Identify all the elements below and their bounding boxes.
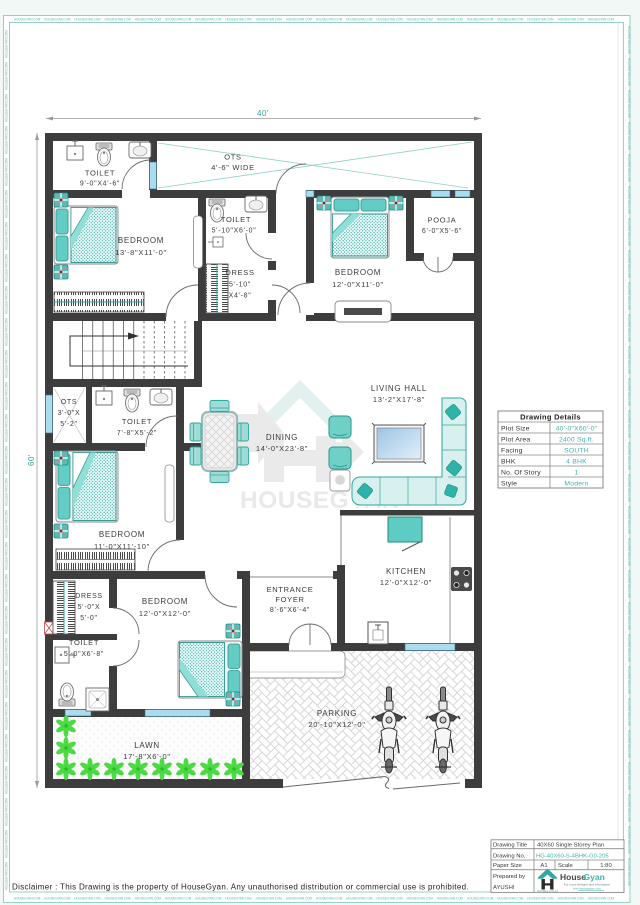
svg-text:HG-40X60-S-4BHK-G0-205: HG-40X60-S-4BHK-G0-205 bbox=[536, 853, 609, 859]
svg-text:7'-8"X5'-2": 7'-8"X5'-2" bbox=[117, 430, 157, 437]
svg-text:TOILET: TOILET bbox=[69, 638, 99, 647]
svg-text:Drawing Title: Drawing Title bbox=[493, 842, 528, 848]
svg-text:HOUSEGYAN.COM HOUSEGYAN.CO: HOUSEGYAN.COM HOUSEGYAN.COM HOUSEGYAN.CO… bbox=[5, 26, 9, 890]
svg-text:6'-0"X5'-6": 6'-0"X5'-6" bbox=[422, 228, 462, 235]
svg-text:TOILET: TOILET bbox=[85, 169, 115, 178]
svg-text:OTS: OTS bbox=[61, 399, 78, 406]
svg-text:4'-6" WIDE: 4'-6" WIDE bbox=[211, 163, 255, 172]
svg-text:HOUSEGYAN.COM HOUSEGYAN.CO: HOUSEGYAN.COM HOUSEGYAN.COM HOUSEGYAN.CO… bbox=[14, 897, 618, 901]
svg-text:TOILET: TOILET bbox=[122, 417, 152, 426]
svg-text:KITCHEN: KITCHEN bbox=[386, 567, 426, 576]
svg-text:PARKING: PARKING bbox=[317, 709, 357, 718]
svg-text:1: 1 bbox=[575, 469, 579, 476]
svg-text:TOILET: TOILET bbox=[221, 215, 251, 224]
svg-text:LAWN: LAWN bbox=[134, 741, 160, 750]
svg-text:11'-0"X11'-10": 11'-0"X11'-10" bbox=[94, 542, 150, 551]
svg-text:Paper Size: Paper Size bbox=[493, 863, 523, 869]
svg-text:13'-8"X11'-0": 13'-8"X11'-0" bbox=[115, 248, 167, 257]
svg-text:Drawing No.: Drawing No. bbox=[493, 853, 526, 859]
svg-text:5'-2": 5'-2" bbox=[60, 421, 77, 428]
svg-text:BEDROOM: BEDROOM bbox=[142, 597, 188, 606]
svg-text:60': 60' bbox=[27, 454, 36, 466]
svg-text:5'-0"X: 5'-0"X bbox=[78, 604, 101, 611]
svg-text:5'-0": 5'-0" bbox=[80, 615, 97, 622]
svg-text:DRESS: DRESS bbox=[225, 268, 254, 277]
svg-text:1:80: 1:80 bbox=[600, 863, 612, 869]
svg-text:DINING: DINING bbox=[266, 433, 298, 442]
svg-text:LIVING HALL: LIVING HALL bbox=[371, 384, 427, 393]
svg-text:40X60 Single Storey Plan: 40X60 Single Storey Plan bbox=[537, 842, 604, 848]
svg-text:HOUSES & FLAT: HOUSES & FLAT bbox=[537, 890, 559, 893]
svg-text:Facing: Facing bbox=[501, 447, 523, 454]
svg-text:BEDROOM: BEDROOM bbox=[118, 236, 164, 245]
svg-text:4 BHK: 4 BHK bbox=[566, 458, 587, 465]
svg-text:POOJA: POOJA bbox=[428, 216, 457, 225]
svg-text:5'-10": 5'-10" bbox=[229, 282, 251, 289]
svg-text:A1: A1 bbox=[540, 863, 547, 869]
svg-text:Disclaimer : This Drawing is t: Disclaimer : This Drawing is the propert… bbox=[12, 883, 469, 892]
svg-text:40': 40' bbox=[257, 109, 269, 118]
svg-text:12'-0"X12'-0": 12'-0"X12'-0" bbox=[139, 609, 191, 618]
svg-text:FOYER: FOYER bbox=[275, 595, 304, 604]
svg-text:12'-0"X11'-0": 12'-0"X11'-0" bbox=[332, 280, 384, 289]
svg-text:40'-0"X60'-0": 40'-0"X60'-0" bbox=[556, 425, 598, 432]
svg-text:8'-6"X6'-4": 8'-6"X6'-4" bbox=[270, 607, 310, 614]
svg-text:BEDROOM: BEDROOM bbox=[99, 530, 145, 539]
svg-text:Drawing Details: Drawing Details bbox=[520, 413, 581, 422]
svg-text:ENTRANCE: ENTRANCE bbox=[267, 585, 314, 594]
svg-text:X4'-8": X4'-8" bbox=[229, 293, 252, 300]
svg-text:20'-10"X12'-0": 20'-10"X12'-0" bbox=[308, 720, 365, 729]
svg-text:AYUSHI: AYUSHI bbox=[493, 885, 515, 891]
svg-text:2400 Sq.ft.: 2400 Sq.ft. bbox=[559, 436, 594, 443]
svg-text:Style: Style bbox=[501, 480, 517, 487]
svg-text:SOUTH: SOUTH bbox=[564, 447, 589, 454]
svg-text:HOUSEGYAN.COM HOUSEGYAN.CO: HOUSEGYAN.COM HOUSEGYAN.COM HOUSEGYAN.CO… bbox=[627, 26, 631, 890]
svg-text:3'-0"X: 3'-0"X bbox=[58, 410, 81, 417]
svg-text:HOUSEGYAN.COM HOUSEGYAN.CO: HOUSEGYAN.COM HOUSEGYAN.COM HOUSEGYAN.CO… bbox=[14, 18, 618, 22]
svg-text:Plot Area: Plot Area bbox=[501, 436, 530, 443]
svg-text:13'-2"X17'-8": 13'-2"X17'-8" bbox=[373, 395, 425, 404]
svg-text:5'-0"X6'-8": 5'-0"X6'-8" bbox=[64, 651, 104, 658]
svg-text:BHK: BHK bbox=[501, 458, 516, 465]
svg-text:House: House bbox=[560, 872, 586, 882]
svg-text:14'-0"X23'-8": 14'-0"X23'-8" bbox=[256, 444, 308, 453]
svg-text:No. Of Story: No. Of Story bbox=[501, 469, 541, 476]
svg-text:Gyan: Gyan bbox=[584, 872, 605, 882]
svg-text:Modern: Modern bbox=[564, 480, 588, 487]
svg-text:17'-8"X6'-0": 17'-8"X6'-0" bbox=[123, 752, 170, 761]
svg-text:Plot Size: Plot Size bbox=[501, 425, 530, 432]
svg-text:DRESS: DRESS bbox=[75, 593, 103, 600]
svg-text:BEDROOM: BEDROOM bbox=[335, 268, 381, 277]
svg-text:9'-0"X4'-6": 9'-0"X4'-6" bbox=[80, 181, 120, 188]
svg-text:OTS: OTS bbox=[224, 153, 242, 162]
svg-text:5'-10"X6'-0": 5'-10"X6'-0" bbox=[212, 228, 257, 235]
svg-text:12'-0"X12'-0": 12'-0"X12'-0" bbox=[380, 578, 432, 587]
svg-text:Scale: Scale bbox=[558, 863, 573, 869]
svg-text:visit hausegyan.com: visit hausegyan.com bbox=[573, 887, 601, 891]
svg-text:Prepared by: Prepared by bbox=[493, 874, 525, 880]
